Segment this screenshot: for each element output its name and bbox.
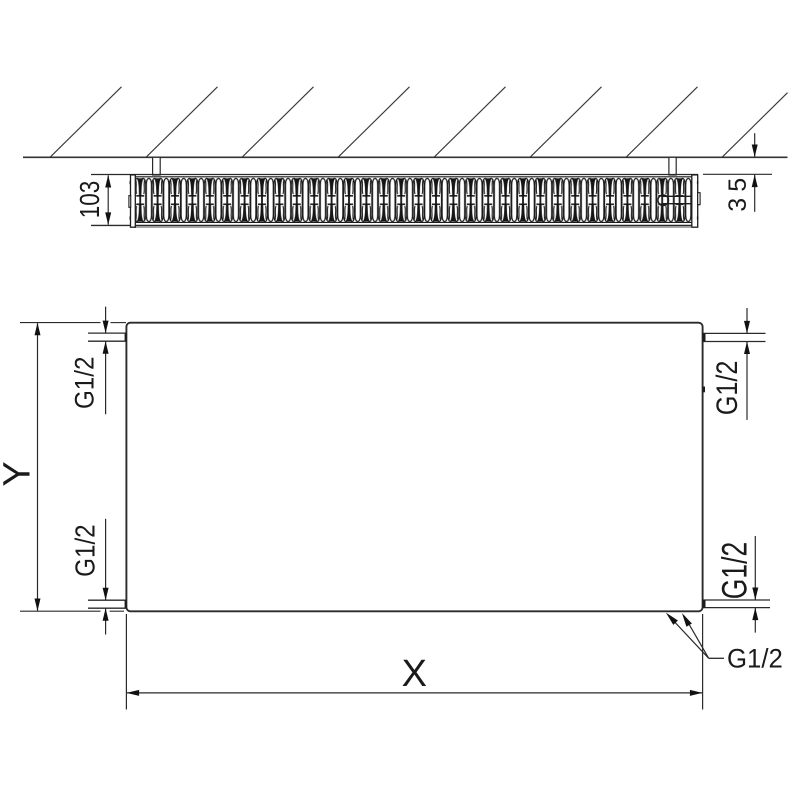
svg-text:Y: Y [0, 461, 39, 486]
svg-text:35: 35 [724, 178, 752, 212]
svg-text:G1/2: G1/2 [727, 643, 783, 673]
svg-text:X: X [402, 653, 427, 695]
svg-text:G1/2: G1/2 [70, 524, 101, 577]
svg-text:G1/2: G1/2 [716, 542, 755, 599]
svg-text:103: 103 [74, 181, 105, 219]
svg-text:G1/2: G1/2 [69, 357, 99, 410]
svg-text:G1/2: G1/2 [711, 361, 744, 416]
